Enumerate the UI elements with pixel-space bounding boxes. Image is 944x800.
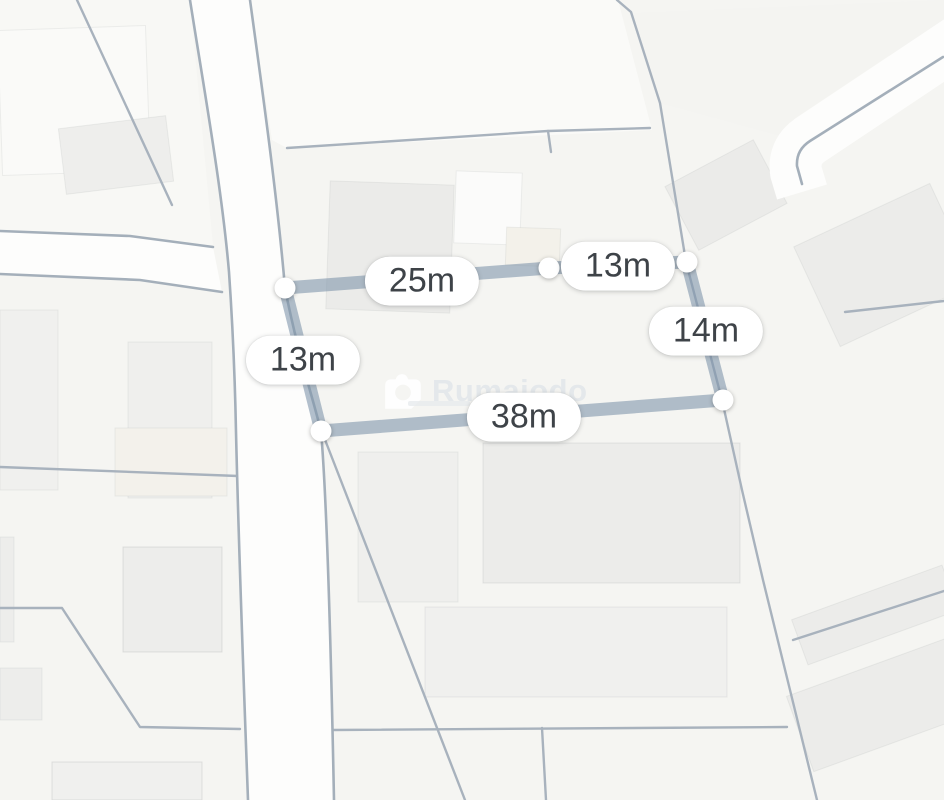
- building-footprint: [358, 452, 458, 602]
- measurement-label-left[interactable]: 13m: [246, 336, 360, 385]
- building-footprint: [0, 668, 42, 720]
- measurement-node[interactable]: [539, 258, 560, 279]
- building-footprint: [123, 547, 222, 652]
- building-footprint: [0, 537, 14, 642]
- measurement-node[interactable]: [275, 278, 296, 299]
- measurement-node[interactable]: [311, 421, 332, 442]
- building-footprint: [665, 140, 787, 251]
- map-view[interactable]: Rumaiodo 25m 13m 14m 38m 13m: [0, 0, 944, 800]
- measurement-node[interactable]: [677, 252, 698, 273]
- building-footprint: [425, 607, 727, 697]
- measurement-node[interactable]: [713, 390, 734, 411]
- building-footprint: [58, 116, 173, 195]
- building-footprint: [794, 183, 944, 346]
- building-footprint: [115, 428, 227, 496]
- building-footprint: [0, 310, 58, 490]
- measurement-label-bottom[interactable]: 38m: [467, 393, 581, 442]
- measurement-label-top-right[interactable]: 13m: [561, 242, 675, 291]
- measurement-label-right[interactable]: 14m: [649, 307, 763, 356]
- measurement-label-top-left[interactable]: 25m: [365, 257, 479, 306]
- building-footprint: [483, 443, 740, 583]
- building-footprint: [52, 762, 202, 800]
